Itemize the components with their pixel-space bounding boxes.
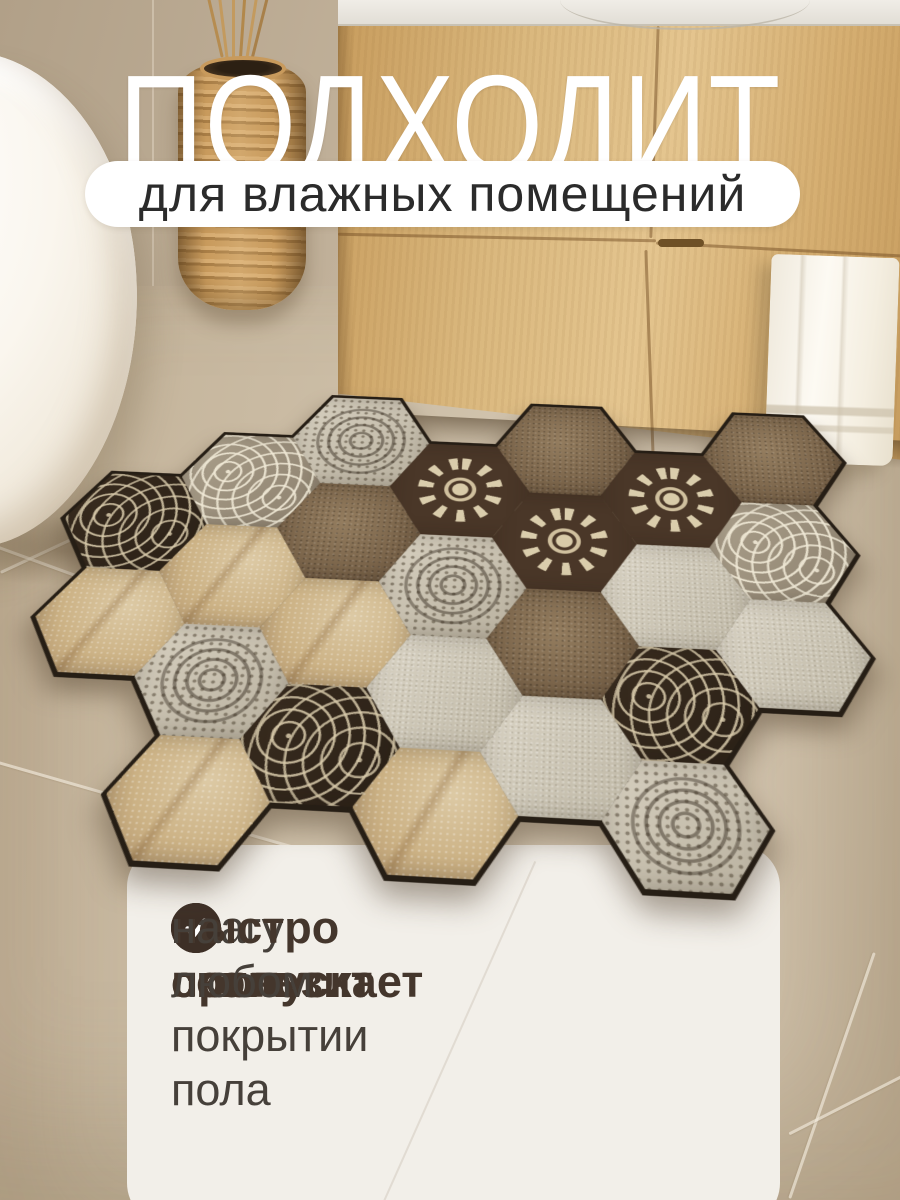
drawer-handle [658, 239, 704, 247]
subtitle-pill: для влажных помещений [85, 161, 800, 227]
subtitle-text: для влажных помещений [139, 165, 747, 223]
product-banner: не пропускает влагу быстро сохнет не ско… [0, 0, 900, 1200]
features-card: не пропускает влагу быстро сохнет не ско… [127, 845, 780, 1200]
hex-mat [0, 388, 900, 904]
